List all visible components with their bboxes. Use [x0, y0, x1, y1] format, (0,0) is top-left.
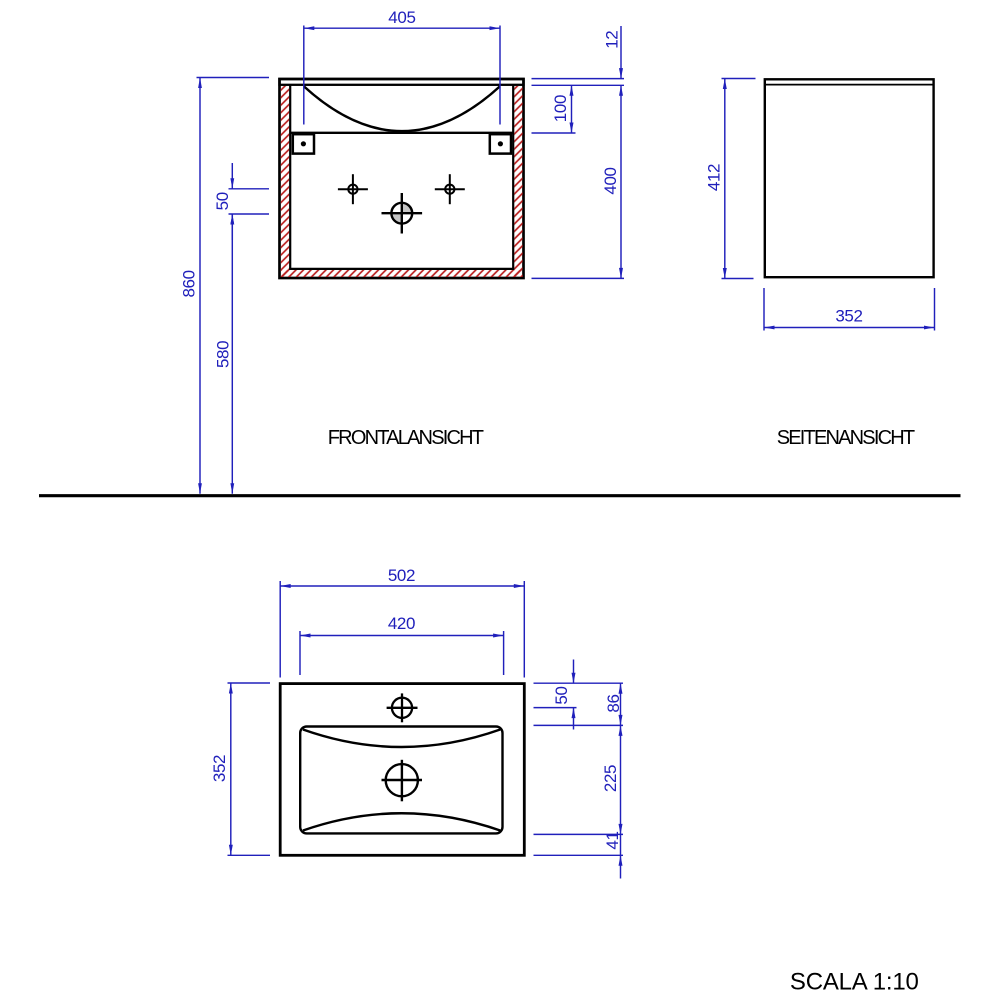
- svg-text:860: 860: [180, 270, 199, 297]
- svg-text:12: 12: [603, 31, 622, 49]
- svg-text:41: 41: [603, 831, 622, 849]
- svg-text:SEITENANSICHT: SEITENANSICHT: [777, 427, 915, 449]
- svg-text:100: 100: [551, 95, 570, 122]
- svg-text:352: 352: [835, 307, 862, 326]
- svg-text:420: 420: [388, 614, 415, 633]
- svg-text:352: 352: [210, 755, 229, 782]
- svg-text:50: 50: [552, 686, 571, 704]
- svg-text:502: 502: [388, 566, 415, 585]
- svg-text:SCALA 1:10: SCALA 1:10: [790, 969, 919, 996]
- svg-text:400: 400: [601, 167, 620, 194]
- svg-text:580: 580: [213, 341, 232, 368]
- svg-text:50: 50: [213, 192, 232, 210]
- svg-text:405: 405: [388, 8, 415, 27]
- svg-text:225: 225: [601, 765, 620, 792]
- svg-text:FRONTALANSICHT: FRONTALANSICHT: [328, 427, 484, 449]
- svg-text:86: 86: [604, 694, 623, 712]
- svg-text:412: 412: [705, 164, 724, 191]
